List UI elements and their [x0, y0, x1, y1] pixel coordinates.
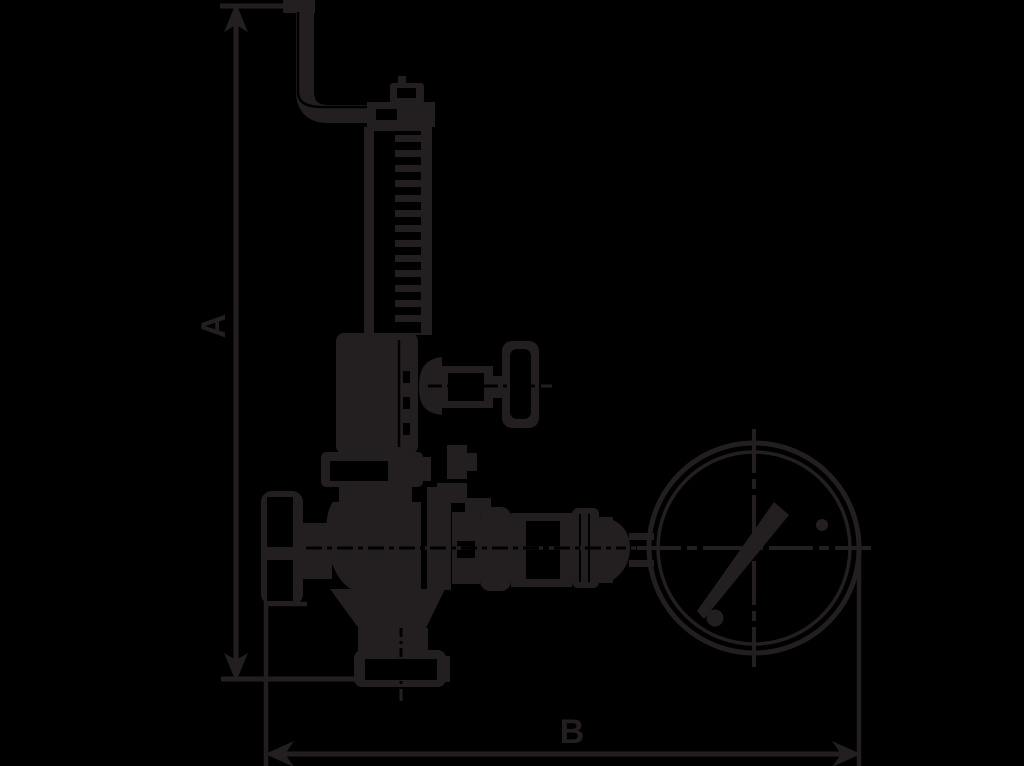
pressure-gauge: [637, 429, 871, 667]
gauge-pin-lower: [707, 610, 724, 627]
middle-flange: [321, 445, 477, 503]
taper-bell: [613, 520, 630, 580]
valve-body: [326, 502, 421, 590]
gauge-pin-upper: [816, 519, 828, 531]
dimension-b-label: B: [560, 713, 585, 751]
test-valve-knob: [419, 341, 557, 428]
bonnet-body: [336, 333, 418, 454]
lever-end-cap: [283, 0, 315, 13]
body-casting: [326, 502, 421, 590]
spring-housing: [364, 76, 435, 335]
body-side-plate: [427, 487, 451, 590]
side-column: [447, 445, 467, 479]
extension-line-left: [266, 604, 307, 766]
outlet-flange: [330, 589, 450, 701]
outlet-cone: [330, 589, 445, 630]
joint-ring: [339, 487, 412, 503]
gauge-needle: [697, 502, 789, 619]
spacer-ring: [599, 517, 613, 583]
valve-technical-drawing: A B: [0, 0, 1024, 766]
bonnet: [336, 333, 418, 454]
dimension-a-label: A: [195, 314, 233, 339]
outlet-stem: [358, 628, 428, 652]
